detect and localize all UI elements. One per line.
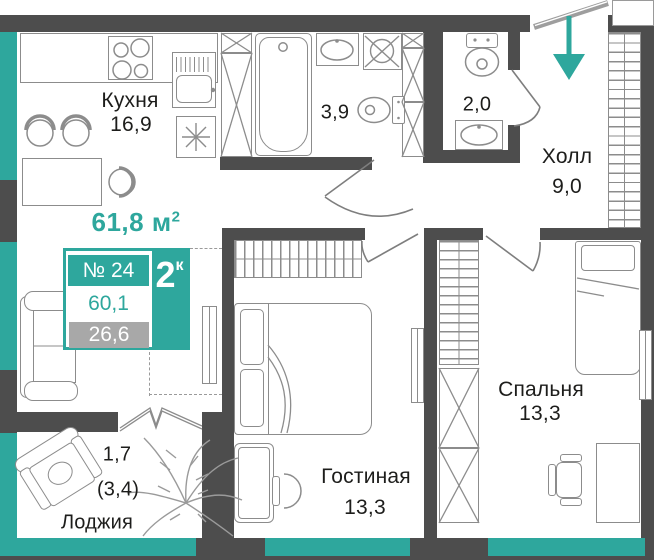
kitchen-area-label: 16,9 — [110, 114, 152, 136]
bathtub-inner — [259, 37, 308, 152]
loggia-area-reduced-label: 1,7 — [103, 445, 131, 466]
bedroom-wardrobe-upper — [439, 368, 479, 448]
hall-name-label: Холл — [542, 146, 592, 168]
cabinet-right-low — [402, 102, 424, 157]
wall-loggia-right — [202, 412, 234, 538]
total-area-unit: м — [152, 207, 172, 237]
wall-living-left — [222, 228, 234, 412]
zone-dash-vertical — [149, 352, 150, 396]
radiator-living — [411, 328, 424, 403]
living-name-label: Гостиная — [321, 466, 411, 488]
kitchen-sink-basin — [176, 75, 212, 103]
living-chair-back — [272, 476, 280, 506]
rooms-count-value: 2 — [155, 257, 175, 293]
total-area-label: 61,8 м2 — [78, 207, 194, 238]
stove-icon — [108, 36, 153, 80]
wall-living-bedroom — [424, 240, 437, 538]
window-living-bottom — [265, 538, 410, 556]
wall-left-seg1 — [0, 180, 17, 242]
fridge-icon — [176, 116, 216, 158]
bathroom-area-label: 3,9 — [321, 103, 349, 124]
hall-area-label: 9,0 — [552, 176, 582, 198]
bed-headboard-line — [268, 304, 269, 434]
washing-machine-icon — [363, 33, 402, 70]
bedroom-chair-seat — [556, 462, 582, 498]
radiator-kitchen — [202, 306, 217, 384]
wall-wc-right-bottom — [508, 125, 520, 163]
living-desk-inner — [238, 447, 270, 519]
entrance-threshold-box — [612, 0, 654, 26]
apartment-number-badge: № 24 — [68, 255, 149, 286]
bedroom-name-label: Спальня — [498, 379, 584, 401]
bedroom-wardrobe-rack — [439, 240, 479, 365]
bedroom-area-label: 13,3 — [519, 403, 561, 425]
bed-pillow-bottom — [240, 369, 264, 427]
rooms-count-badge: 2к — [152, 251, 187, 347]
cabinet-right-mid — [402, 48, 424, 102]
wall-band-right — [540, 228, 641, 240]
bath-toilet-tank — [392, 96, 405, 124]
bath-sink-icon — [316, 33, 359, 66]
wc-area-label: 2,0 — [463, 95, 491, 116]
total-area-exponent: 2 — [172, 208, 181, 225]
bedroom-chair-back — [548, 464, 556, 496]
living-clothes-rack — [234, 240, 362, 278]
loggia-armchair — [12, 424, 108, 518]
kitchen-table — [22, 158, 102, 206]
bedroom-chair-arm-top — [560, 454, 582, 462]
entrance-arrow-icon — [553, 16, 585, 80]
wall-bottom-edge — [0, 556, 654, 560]
area-living-badge: 26,6 — [69, 322, 149, 348]
wc-sink-icon — [455, 120, 503, 150]
area-total-value: 60,1 — [68, 290, 149, 317]
single-bed-pillow — [581, 245, 635, 271]
wall-wc-bottom — [423, 150, 520, 163]
wall-wc-left — [423, 32, 443, 163]
wall-top — [0, 15, 530, 32]
cabinet-left-small — [221, 33, 252, 53]
loggia-double-door — [120, 408, 202, 431]
living-chair-icon — [284, 474, 301, 508]
kitchen-name-label: Кухня — [101, 90, 158, 112]
wall-band-living — [222, 228, 365, 240]
apartment-info-card: 2к № 24 60,1 26,6 — [63, 248, 190, 350]
wall-band-middle — [424, 228, 483, 240]
rooms-count-suffix: к — [176, 257, 184, 275]
zone-dash-bottom — [149, 394, 222, 395]
kitchen-sink-drainer — [176, 57, 212, 72]
window-loggia-bottom — [0, 538, 196, 556]
wall-loggia-top — [0, 412, 118, 432]
radiator-bedroom — [639, 330, 652, 400]
window-left-living-zone — [0, 242, 17, 370]
wall-right — [641, 15, 654, 538]
floor-plan: 61,8 м2 2к № 24 60,1 26,6 Кухня 16,9 3,9… — [0, 0, 654, 560]
loggia-name-label: Лоджия — [61, 513, 133, 534]
window-left-kitchen — [0, 32, 17, 180]
total-area-value: 61,8 — [92, 207, 145, 237]
hall-wardrobe-rack — [608, 32, 641, 228]
entrance-door-leaf — [534, 2, 608, 27]
wc-toilet-tank — [466, 33, 498, 48]
cabinet-left-tall — [221, 53, 252, 157]
loggia-area-total-label: (3,4) — [97, 480, 139, 501]
bedroom-desk — [596, 443, 640, 523]
bedroom-wardrobe-lower — [439, 448, 479, 523]
wall-wc-right-top — [508, 32, 520, 70]
window-bedroom-bottom — [488, 538, 645, 556]
wall-bathroom-bottom — [220, 157, 372, 170]
zone-dash-top — [190, 248, 222, 249]
bedroom-chair-arm-bottom — [560, 498, 582, 506]
sofa-armrest-bottom — [24, 381, 78, 401]
bed-pillow-top — [240, 309, 264, 365]
cabinet-right-small — [402, 33, 424, 48]
living-area-label: 13,3 — [344, 497, 386, 519]
